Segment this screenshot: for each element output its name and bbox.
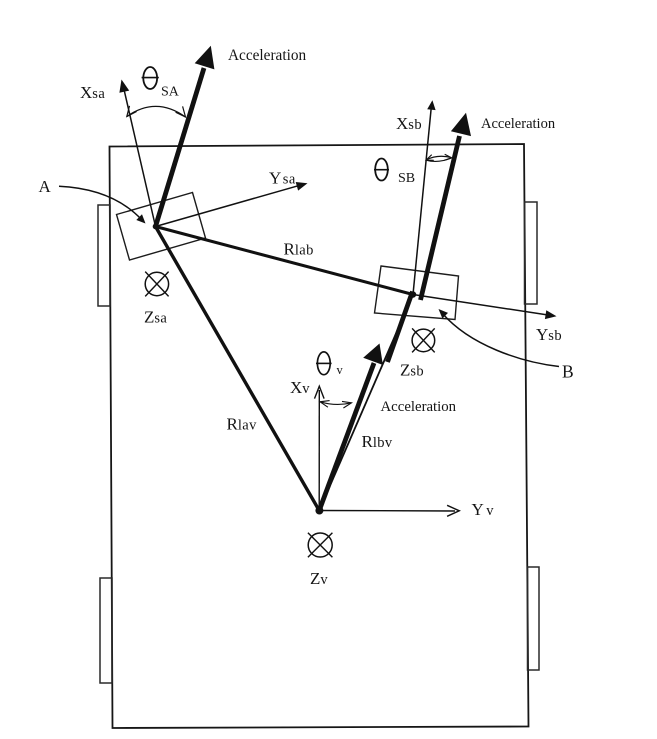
svg-text:Rlav: Rlav	[227, 415, 258, 434]
svg-text:Ysb: Ysb	[536, 325, 562, 344]
svg-text:Xsa: Xsa	[80, 83, 105, 102]
svg-text:Acceleration: Acceleration	[228, 47, 306, 64]
svg-text:Yv: Yv	[472, 500, 495, 519]
svg-text:Zsa: Zsa	[144, 307, 167, 326]
svg-text:SA: SA	[161, 85, 180, 100]
svg-text:Xv: Xv	[290, 378, 310, 397]
svg-text:Rlbv: Rlbv	[362, 432, 393, 451]
svg-text:B: B	[562, 362, 574, 382]
svg-text:A: A	[39, 177, 52, 196]
svg-text:Acceleration: Acceleration	[481, 116, 556, 132]
svg-text:Zv: Zv	[310, 569, 328, 588]
svg-text:Rlab: Rlab	[284, 239, 314, 258]
svg-text:Acceleration: Acceleration	[381, 399, 457, 415]
svg-text:v: v	[337, 363, 344, 377]
svg-text:Xsb: Xsb	[396, 114, 422, 133]
svg-text:SB: SB	[398, 171, 415, 186]
svg-text:Ysa: Ysa	[269, 169, 296, 188]
svg-text:Zsb: Zsb	[400, 360, 424, 379]
